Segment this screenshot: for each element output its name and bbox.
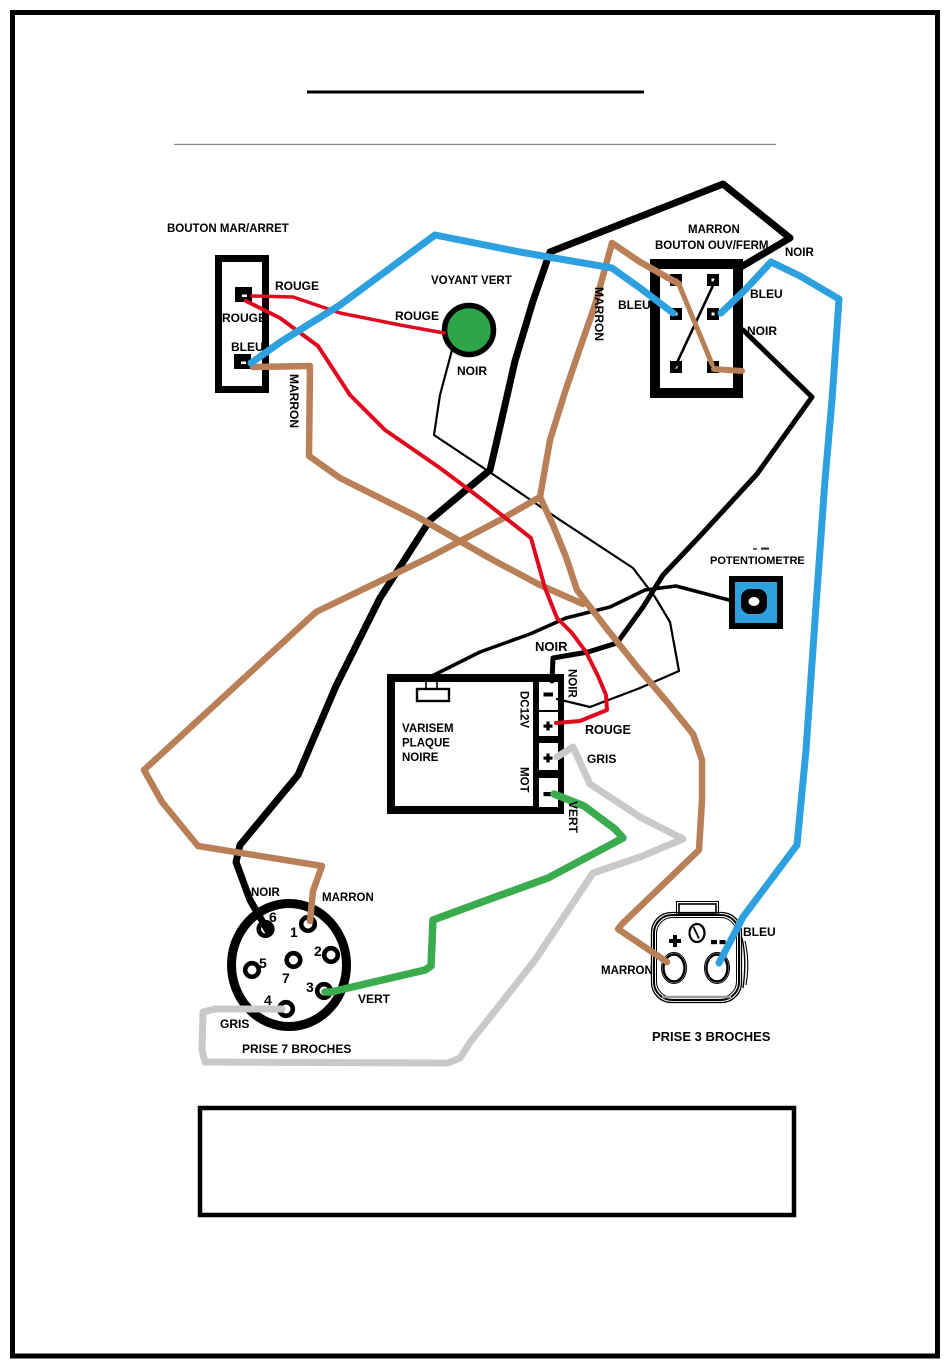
svg-text:NOIR: NOIR <box>747 324 777 338</box>
svg-text:7: 7 <box>282 970 290 986</box>
svg-text:BLEU: BLEU <box>743 925 776 939</box>
svg-text:ROUGE: ROUGE <box>222 311 266 325</box>
svg-text:POTENTIOMETRE: POTENTIOMETRE <box>710 555 805 567</box>
svg-text:PLAQUE: PLAQUE <box>402 738 450 750</box>
svg-text:MARRON: MARRON <box>688 224 740 236</box>
svg-text:VOYANT VERT: VOYANT VERT <box>431 275 512 287</box>
svg-text:VERT: VERT <box>358 992 391 1006</box>
svg-text:GRIS: GRIS <box>220 1017 249 1031</box>
svg-text:ROUGE: ROUGE <box>275 279 319 293</box>
svg-text:ROUGE: ROUGE <box>585 723 631 737</box>
svg-text:PRISE 3 BROCHES: PRISE 3 BROCHES <box>652 1029 771 1044</box>
svg-text:PRISE 7 BROCHES: PRISE 7 BROCHES <box>242 1042 351 1056</box>
svg-text:MARRON: MARRON <box>287 374 301 428</box>
svg-text:DC12V: DC12V <box>518 691 530 728</box>
svg-text:NOIR: NOIR <box>251 887 280 899</box>
svg-text:BLEU: BLEU <box>750 287 783 301</box>
svg-text:4: 4 <box>264 992 272 1008</box>
svg-text:3: 3 <box>306 979 314 995</box>
svg-text:BOUTON OUV/FERM: BOUTON OUV/FERM <box>655 240 769 252</box>
svg-text:BLEU: BLEU <box>618 298 651 312</box>
svg-text:VERT: VERT <box>566 801 580 834</box>
svg-text:MARRON: MARRON <box>601 965 653 977</box>
svg-text:ROUGE: ROUGE <box>395 309 439 323</box>
svg-text:BOUTON MAR/ARRET: BOUTON MAR/ARRET <box>167 223 289 235</box>
svg-text:BLEU: BLEU <box>231 340 264 354</box>
svg-text:5: 5 <box>259 955 267 971</box>
svg-text:GRIS: GRIS <box>587 752 616 766</box>
svg-text:VARISEM: VARISEM <box>402 723 454 735</box>
svg-text:2: 2 <box>314 943 322 959</box>
svg-text:MOT: MOT <box>518 767 530 793</box>
svg-text:MARRON: MARRON <box>592 287 606 341</box>
svg-text:NOIR: NOIR <box>457 364 487 378</box>
svg-text:NOIR: NOIR <box>566 669 578 698</box>
svg-text:MARRON: MARRON <box>322 892 374 904</box>
svg-text:NOIRE: NOIRE <box>402 752 439 764</box>
svg-text:6: 6 <box>269 909 277 925</box>
svg-text:NOIR: NOIR <box>535 639 568 654</box>
svg-text:1: 1 <box>290 924 298 940</box>
svg-text:NOIR: NOIR <box>785 247 814 259</box>
